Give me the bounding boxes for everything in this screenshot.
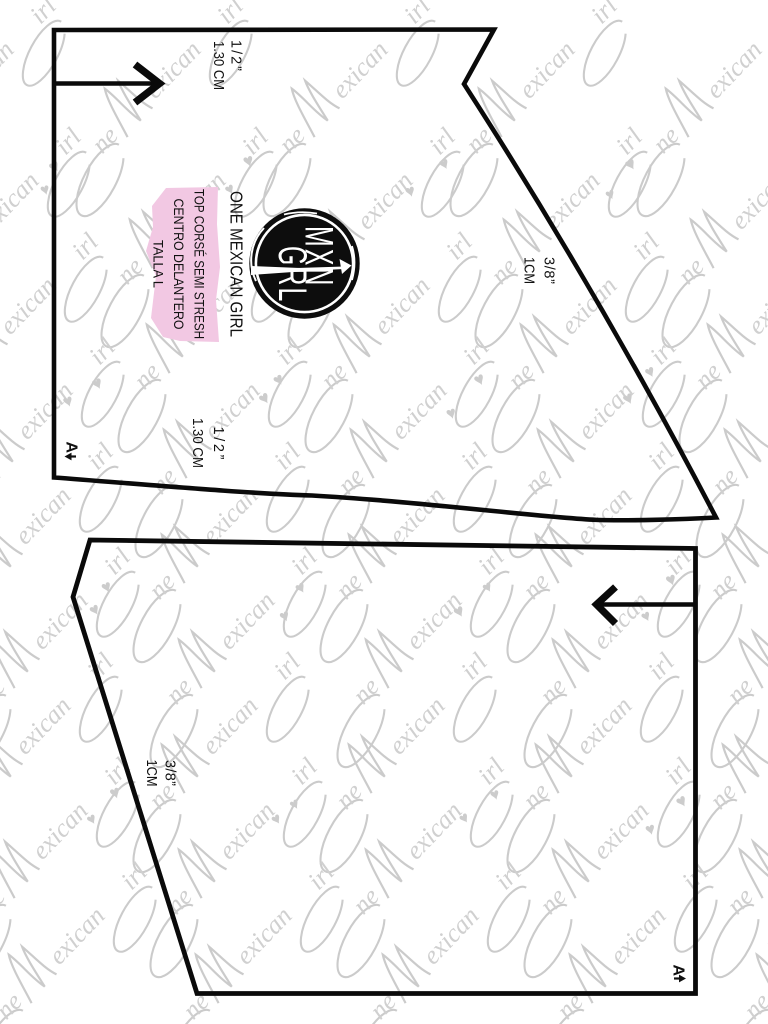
svg-text:1CM: 1CM	[143, 760, 159, 787]
svg-text:TALLA L: TALLA L	[151, 240, 166, 288]
svg-text:A: A	[63, 442, 80, 454]
svg-text:TOP CORSÉ SEMI STRESH: TOP CORSÉ SEMI STRESH	[192, 189, 208, 339]
svg-text:A: A	[670, 965, 687, 977]
svg-text:1/2”: 1/2”	[228, 40, 244, 71]
svg-text:3/8”: 3/8”	[162, 760, 178, 786]
svg-text:ONE MEXICAN GIRL: ONE MEXICAN GIRL	[227, 191, 247, 337]
svg-text:GRL: GRL	[269, 246, 313, 303]
svg-text:1/2”: 1/2”	[210, 427, 226, 460]
svg-text:1.30 CM: 1.30 CM	[189, 418, 205, 468]
svg-text:3/8”: 3/8”	[541, 257, 557, 284]
svg-text:1.30 CM: 1.30 CM	[210, 41, 226, 90]
svg-text:CENTRO DELANTERO: CENTRO DELANTERO	[171, 199, 186, 330]
svg-text:1CM: 1CM	[521, 257, 537, 284]
